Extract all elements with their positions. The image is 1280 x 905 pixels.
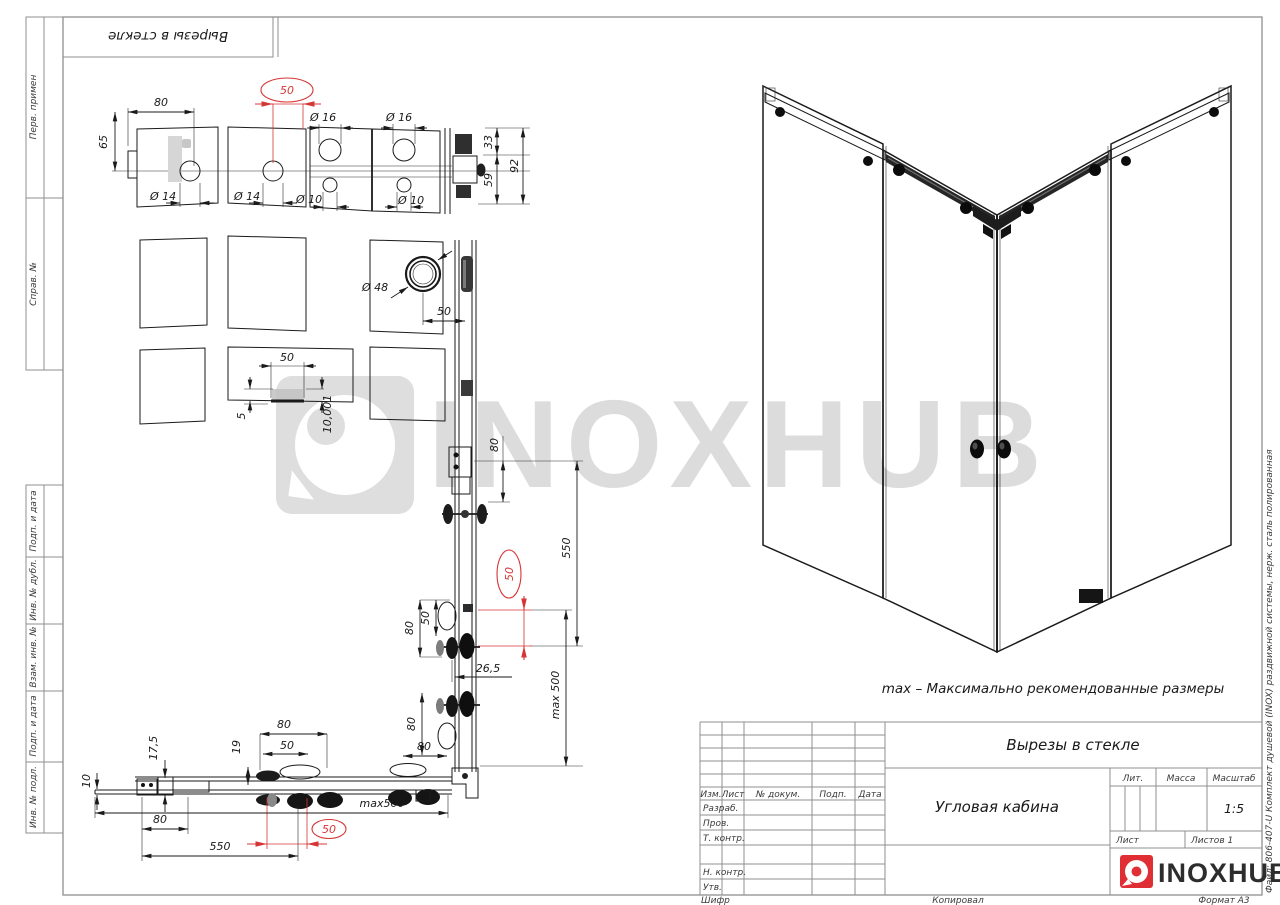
tb-row-utv: Утв. xyxy=(703,883,722,893)
top-rail-left-fixed xyxy=(765,93,885,160)
dim-max500-vert: max 500 xyxy=(549,671,562,719)
bottom-guide xyxy=(1079,589,1103,603)
dim-65-row1: 65 xyxy=(97,135,110,149)
dim-80-col-top: 80 xyxy=(488,438,501,452)
dim-80-col-mid: 80 xyxy=(403,621,416,635)
tb-row-prov: Пров. xyxy=(703,819,729,829)
dim-50-row2: 50 xyxy=(437,305,451,318)
tb-col-list: Лист xyxy=(721,790,746,800)
dim-80-col-low-a: 80 xyxy=(405,717,418,731)
dim-80-row1: 80 xyxy=(154,96,168,109)
turned-stamp: Вырезы в стекле xyxy=(63,17,278,57)
tb-scale-value: 1:5 xyxy=(1224,801,1244,816)
dim-50-col-mid: 50 xyxy=(419,611,432,625)
dim-d10-left: Ø 10 xyxy=(295,193,322,206)
tb-col-dokum: № докум. xyxy=(755,790,800,800)
margin-label-vzam-inv: Взам. инв. № xyxy=(29,626,39,687)
tb-list-label: Лист xyxy=(1115,836,1140,846)
cabin-3d-view: max – Максимально рекомендованные размер… xyxy=(763,86,1231,697)
mirrored-title: Вырезы в стекле xyxy=(108,28,228,44)
dim-50-notch: 50 xyxy=(280,351,294,364)
dim-550-col: 550 xyxy=(560,538,573,559)
corner-connector xyxy=(452,768,478,798)
margin-label-podp-data-1: Подп. и дата xyxy=(29,490,39,551)
dim-265: 26,5 xyxy=(476,662,501,675)
dim-80-bottom-mid: 80 xyxy=(277,718,291,731)
drawing-sheet: INOXHUB Перв. примен Справ. № Подп. и да… xyxy=(0,0,1280,905)
dim-d10-right: Ø 10 xyxy=(397,194,424,207)
dim-10-bottom: 10 xyxy=(80,774,93,788)
inoxhub-logo: INOXHUB xyxy=(1120,855,1280,888)
dim-d16-left: Ø 16 xyxy=(309,111,336,124)
dim-max500-bottom: max500 xyxy=(360,797,405,810)
footer-cipher: Шифр xyxy=(701,896,730,905)
glass-door-left xyxy=(883,150,997,652)
vertical-section: 80 550 50 80 xyxy=(403,430,583,798)
max-note: max – Максимально рекомендованные размер… xyxy=(882,681,1225,697)
door-knob-left xyxy=(970,440,984,459)
footer-copied: Копировал xyxy=(932,896,984,905)
bracket-shadow xyxy=(168,136,182,182)
dim-92: 92 xyxy=(508,159,521,173)
dim-33: 33 xyxy=(482,135,495,149)
dim-80-col-low-b: 80 xyxy=(417,740,431,753)
top-rail-right-fixed xyxy=(1109,93,1229,160)
margin-label-inv-podl: Инв. № подл. xyxy=(29,766,39,828)
tb-col-data: Дата xyxy=(857,790,881,800)
door-knob-right xyxy=(997,440,1011,459)
tb-product-name: Угловая кабина xyxy=(935,798,1059,816)
glass-door-right xyxy=(997,150,1111,652)
inoxhub-logo-text: INOXHUB xyxy=(1158,858,1280,888)
tb-col-podp: Подп. xyxy=(819,790,846,800)
tb-col-izm: Изм. xyxy=(700,790,721,800)
horizontal-section: 17,5 10 80 550 80 50 19 xyxy=(80,718,452,861)
tb-massa-label: Масса xyxy=(1167,774,1196,784)
dim-d14-left: Ø 14 xyxy=(149,190,176,203)
margin-cells: Перв. примен Справ. № Подп. и дата Инв. … xyxy=(26,17,63,833)
dim-d48: Ø 48 xyxy=(361,281,388,294)
dim-59: 59 xyxy=(482,173,495,187)
tb-lit-label: Лит. xyxy=(1122,774,1144,784)
tb-row-nkontr: Н. контр. xyxy=(703,868,746,878)
svg-text:50: 50 xyxy=(503,567,516,581)
drawing-frame: Перв. примен Справ. № Подп. и дата Инв. … xyxy=(26,17,1275,905)
title-block: Изм. Лист № докум. Подп. Дата Разраб. Пр… xyxy=(700,722,1280,895)
file-note-vertical: Файл: 806-407-U Комплект душевой (INOX) … xyxy=(1265,449,1275,893)
margin-label-perv-primen: Перв. примен xyxy=(29,75,39,140)
dim-d14-mid: Ø 14 xyxy=(233,190,260,203)
dim-5-notch: 5 xyxy=(235,413,248,420)
margin-label-podp-data-2: Подп. и дата xyxy=(29,695,39,756)
margin-label-sprav: Справ. № xyxy=(29,262,39,306)
tb-row-tkontr: Т. контр. xyxy=(703,834,745,844)
tb-row-razrab: Разраб. xyxy=(703,804,738,814)
dim-19-bottom: 19 xyxy=(230,740,243,754)
svg-text:50: 50 xyxy=(280,84,294,97)
margin-label-inv-dubl: Инв. № дубл. xyxy=(29,559,39,621)
dim-80-bottom-left: 80 xyxy=(153,813,167,826)
dim-175: 17,5 xyxy=(147,736,160,761)
dim-550-bottom: 550 xyxy=(210,840,231,853)
red-dim-50-middle: 50 xyxy=(478,550,532,660)
tb-doc-title: Вырезы в стекле xyxy=(1006,736,1139,754)
tb-masshtab-label: Масштаб xyxy=(1213,774,1256,784)
dim-50-bottom-mid: 50 xyxy=(280,739,294,752)
wall-profile-section xyxy=(455,240,476,430)
dim-10001-notch: 10,001 xyxy=(321,395,334,434)
footer-format: Формат А3 xyxy=(1198,896,1250,905)
glass-views-row3: 50 5 10,001 xyxy=(140,347,445,433)
svg-text:50: 50 xyxy=(322,823,336,836)
glass-views-row1: 80 65 Ø 14 Ø 14 50 Ø 16 xyxy=(97,78,530,214)
dim-d16-right: Ø 16 xyxy=(385,111,412,124)
tb-listov-label: Листов 1 xyxy=(1190,836,1233,846)
